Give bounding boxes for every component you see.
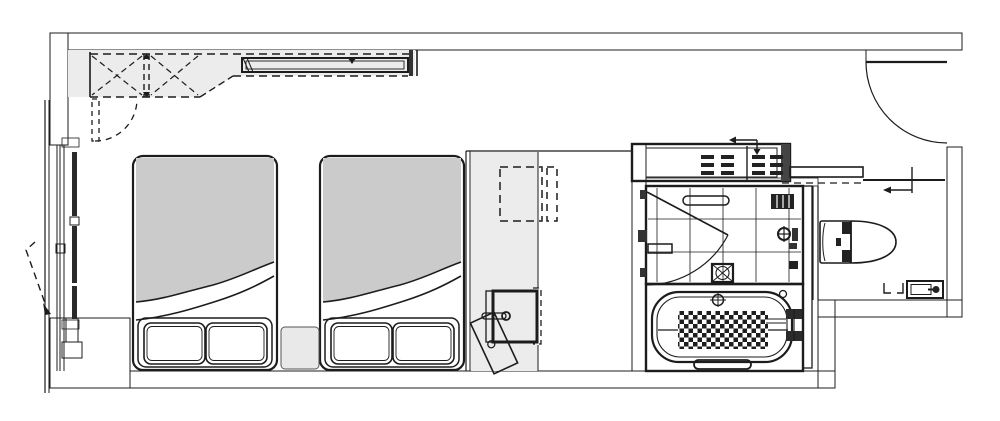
slide-arrow (883, 187, 891, 194)
wall-slot (66, 318, 78, 342)
wall-notch (62, 342, 82, 358)
wall-top (68, 33, 962, 50)
shower-mixer (778, 226, 798, 249)
anti-slip-mat (678, 311, 768, 349)
window-cap-bottom (62, 320, 79, 329)
tub-overflow (780, 291, 787, 298)
shower-room (638, 186, 803, 285)
closet (68, 50, 417, 141)
sliding-door (782, 167, 945, 194)
bed-left (133, 156, 277, 370)
floor-plan-svg (0, 0, 1000, 421)
bathtub-room (646, 284, 803, 371)
desk-counter (466, 151, 632, 374)
toilet-room (782, 167, 945, 300)
bed-right (320, 156, 464, 370)
door-swing-arc (866, 62, 947, 143)
toilet-bowl (851, 221, 896, 263)
window-cap-top (62, 138, 79, 147)
floor-drain (712, 264, 733, 282)
floor-plan-canvas (0, 0, 1000, 421)
wall-toilet-bottom (818, 300, 962, 317)
bathroom-wall-right (803, 186, 812, 368)
towel-shelf-unit (632, 137, 790, 182)
vent-grille (771, 194, 794, 209)
wall-bottom-band (130, 371, 835, 388)
nightstand (281, 327, 319, 369)
wall-left-column (50, 33, 68, 145)
door-stop-mark-1 (884, 283, 891, 293)
toilet (820, 221, 896, 263)
entrance-door (866, 50, 947, 143)
window-left (26, 100, 79, 393)
closet-door-swing (92, 99, 137, 141)
shelf-bracket (409, 50, 413, 76)
wall-right (947, 147, 962, 317)
tub-filler (766, 309, 802, 341)
wall-step (818, 300, 835, 388)
window-sash (72, 152, 77, 216)
bathroom-wall-left (632, 144, 646, 371)
drain-outlet (789, 261, 798, 269)
shelf-slats (701, 155, 783, 175)
shelf-slide-arrow (729, 137, 761, 156)
door-stop-mark-2 (897, 283, 903, 293)
tub-drain (710, 293, 726, 307)
window-swing-mark (26, 242, 51, 315)
paper-holder (907, 281, 943, 298)
